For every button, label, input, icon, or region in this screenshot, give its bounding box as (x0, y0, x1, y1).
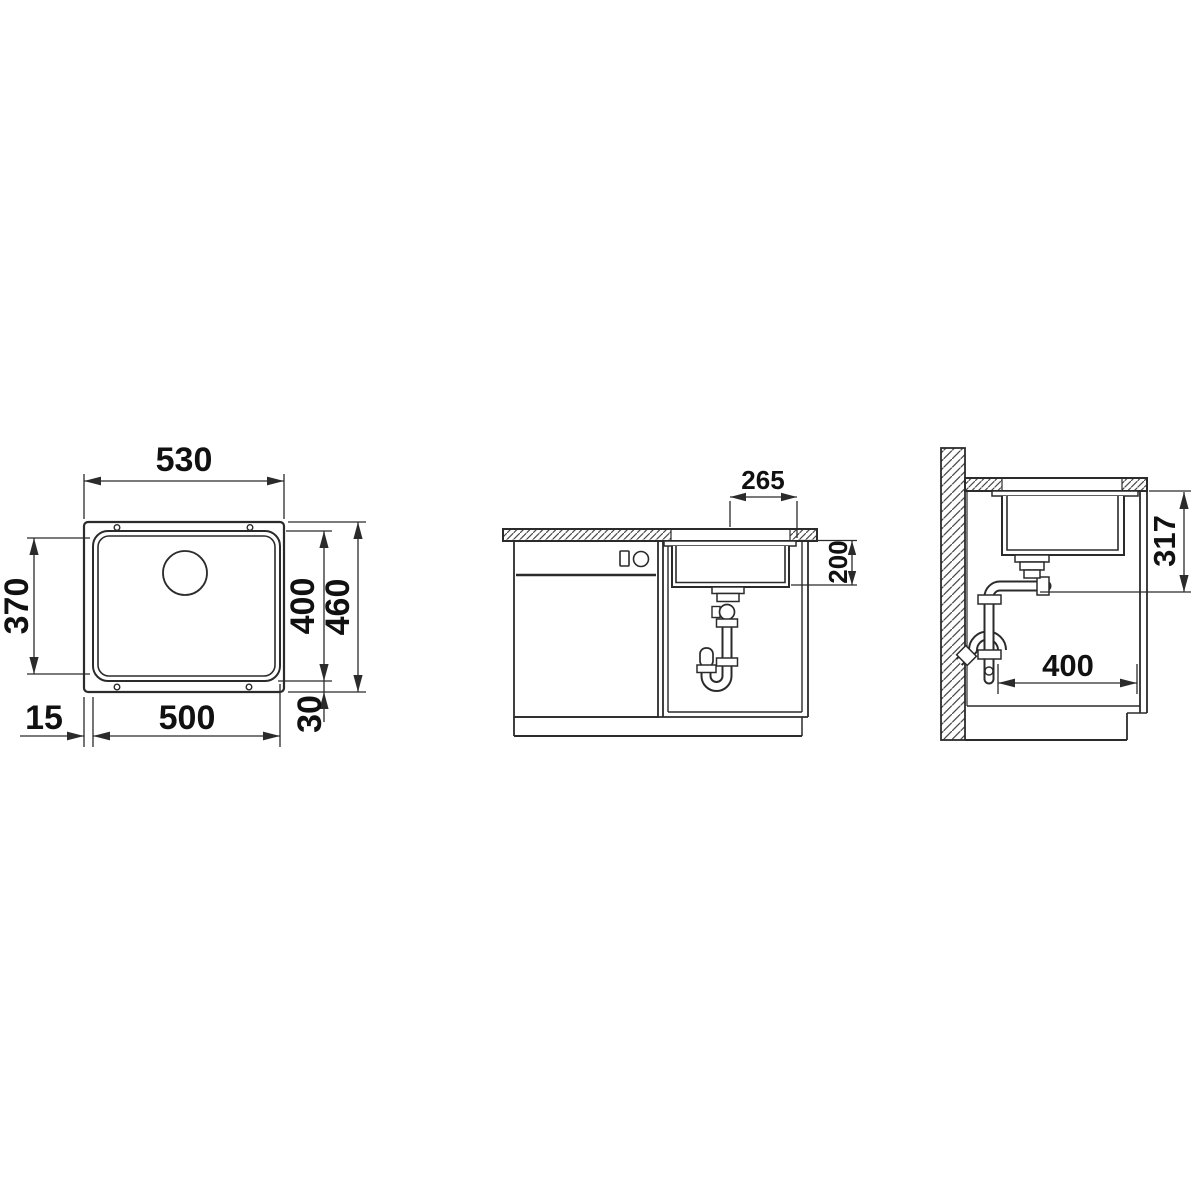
dim-outer-width: 530 (84, 441, 284, 519)
countertop-hatch (966, 479, 1002, 490)
dim-bottom-offset: 30 (291, 681, 329, 733)
arrowhead (1179, 492, 1188, 509)
coupling-nut (978, 650, 1001, 659)
arrowhead (319, 664, 328, 681)
installation-drawing: 530 370 400 460 (0, 0, 1200, 1200)
arrowhead (93, 732, 110, 741)
countertop-hatch (1122, 479, 1146, 490)
bowl-outer-wall (672, 546, 789, 587)
dim-label: 500 (159, 699, 216, 737)
appliance-front (514, 541, 658, 717)
outlet-stub (700, 648, 713, 667)
dim-label: 317 (1147, 515, 1182, 567)
dim-bowl-front-to-back: 400 (998, 648, 1137, 694)
top-view: 530 370 400 460 (0, 441, 366, 747)
dim-label: 15 (25, 699, 63, 737)
strainer-body (717, 594, 739, 602)
drain-elbow (720, 605, 735, 620)
arrowhead (1179, 575, 1188, 592)
mounting-hole (114, 525, 120, 531)
strainer-nut (1024, 570, 1040, 578)
wall-section (941, 448, 965, 740)
sink-flange (664, 541, 796, 546)
arrowhead (29, 538, 38, 555)
coupling-nut (717, 658, 738, 666)
mounting-hole (114, 684, 120, 690)
sink-flange (992, 491, 1138, 496)
strainer-flange (712, 587, 744, 594)
arrowhead (267, 477, 284, 486)
dim-center-to-edge: 265 (730, 465, 797, 538)
dim-bowl-width: 500 (93, 684, 280, 747)
dim-label: 370 (0, 578, 36, 635)
dim-label: 30 (291, 695, 329, 733)
dim-label: 400 (1042, 648, 1094, 683)
arrowhead (353, 522, 362, 539)
dim-edge-offset: 15 (20, 697, 84, 747)
dim-label: 200 (823, 540, 853, 583)
cleanout-plug (985, 667, 993, 675)
arrowhead (263, 732, 280, 741)
arrowhead (1120, 679, 1137, 688)
strainer-body (1020, 562, 1044, 570)
coupling-nut (697, 665, 716, 673)
mounting-hole (246, 684, 252, 690)
arrowhead (67, 732, 84, 741)
coupling-nut (978, 595, 1001, 604)
drain-hole (163, 551, 207, 595)
strainer-flange (1015, 555, 1049, 562)
mounting-hole (247, 525, 253, 531)
arrowhead (29, 657, 38, 674)
dim-label: 400 (284, 578, 322, 635)
countertop-hatch (504, 530, 671, 540)
dim-label: 460 (319, 579, 357, 636)
arrowhead (998, 679, 1015, 688)
arrowhead (319, 531, 328, 548)
front-view: 265 200 (503, 465, 857, 736)
dim-bowl-depth: 200 (791, 540, 857, 585)
dim-label: 530 (156, 441, 213, 479)
drawing-page: 530 370 400 460 (0, 0, 1200, 1200)
dim-label: 265 (741, 465, 784, 495)
arrowhead (353, 675, 362, 692)
dim-inner-height: 370 (0, 538, 90, 674)
side-view: 317 400 (941, 448, 1191, 740)
appliance-control-knob-icon (634, 552, 649, 567)
drain-siphon (697, 587, 744, 687)
appliance-control-rect-icon (620, 551, 629, 566)
arrowhead (84, 477, 101, 486)
countertop-hatch (790, 530, 816, 540)
drain-siphon (957, 555, 1049, 679)
bowl-outer-wall (1002, 496, 1124, 555)
coupling-nut (717, 619, 738, 627)
